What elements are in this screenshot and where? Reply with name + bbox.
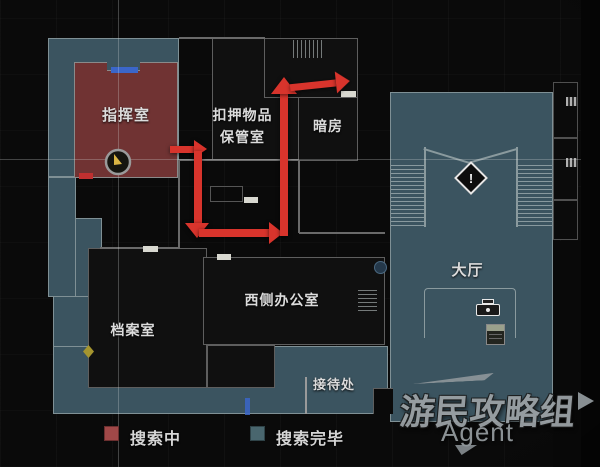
- route-arrow-2-shaft: [194, 151, 202, 225]
- room-east-1: [553, 82, 578, 138]
- stairs-hall-left-icon: [391, 164, 424, 226]
- item-box-icon: [486, 324, 505, 345]
- legend-searching-swatch: [104, 426, 119, 441]
- wall-h232: [299, 232, 385, 234]
- room-label-west-office: 西侧办公室: [212, 290, 352, 310]
- room-hall-area: [390, 92, 553, 422]
- corridor-left-upper: [48, 177, 76, 297]
- room-reception-notch: [373, 388, 393, 414]
- stairs-top-icon: [293, 40, 322, 58]
- room-east-2: [553, 138, 578, 200]
- clock-icon: [103, 147, 133, 177]
- red-item-command: [79, 173, 93, 179]
- legend-complete-label: 搜索完毕: [276, 425, 366, 449]
- door-mark-east-1: [566, 97, 577, 106]
- room-label-evidence: 扣押物品 保管室: [200, 105, 285, 147]
- blue-door-reception: [245, 398, 250, 415]
- wall-corridor-v178: [178, 160, 180, 248]
- blue-door-command: [111, 67, 138, 73]
- wall-v299: [298, 160, 300, 233]
- white-door-west-office: [217, 254, 231, 260]
- white-door-records: [143, 246, 158, 252]
- room-label-hall: 大厅: [430, 259, 505, 280]
- hall-alert-icon: !: [459, 166, 483, 190]
- typewriter-icon: [476, 299, 500, 317]
- route-arrow-1-shaft: [170, 146, 194, 153]
- room-label-darkroom: 暗房: [300, 116, 356, 136]
- crosshair-vertical: [118, 0, 119, 467]
- item-hall-entry: [374, 261, 387, 274]
- room-south-annex: [207, 345, 275, 388]
- legend-searching-label: 搜索中: [130, 425, 200, 449]
- route-arrow-3-shaft: [199, 229, 269, 237]
- room-label-command: 指挥室: [74, 104, 178, 125]
- edge-strip-right: [581, 0, 600, 467]
- wall-notch: [210, 186, 243, 202]
- room-records: [88, 248, 207, 388]
- legend: 搜索中 搜索完毕: [0, 420, 600, 450]
- crosshair-horizontal: [0, 159, 600, 160]
- room-label-reception: 接待处: [302, 374, 366, 393]
- stairs-west-icon: [358, 288, 377, 311]
- white-door-mid: [244, 197, 258, 203]
- game-map-screen: ! ! 指挥室 扣押物品 保管室 暗房 大厅 西侧办公室 档案室 接待处: [0, 0, 600, 467]
- room-label-records: 档案室: [88, 320, 178, 340]
- legend-complete-swatch: [250, 426, 265, 441]
- wall-corridor-h247: [100, 247, 180, 249]
- stairs-hall-right-icon: [518, 164, 552, 226]
- room-east-3: [553, 200, 578, 240]
- wall-top-mid: [179, 37, 265, 39]
